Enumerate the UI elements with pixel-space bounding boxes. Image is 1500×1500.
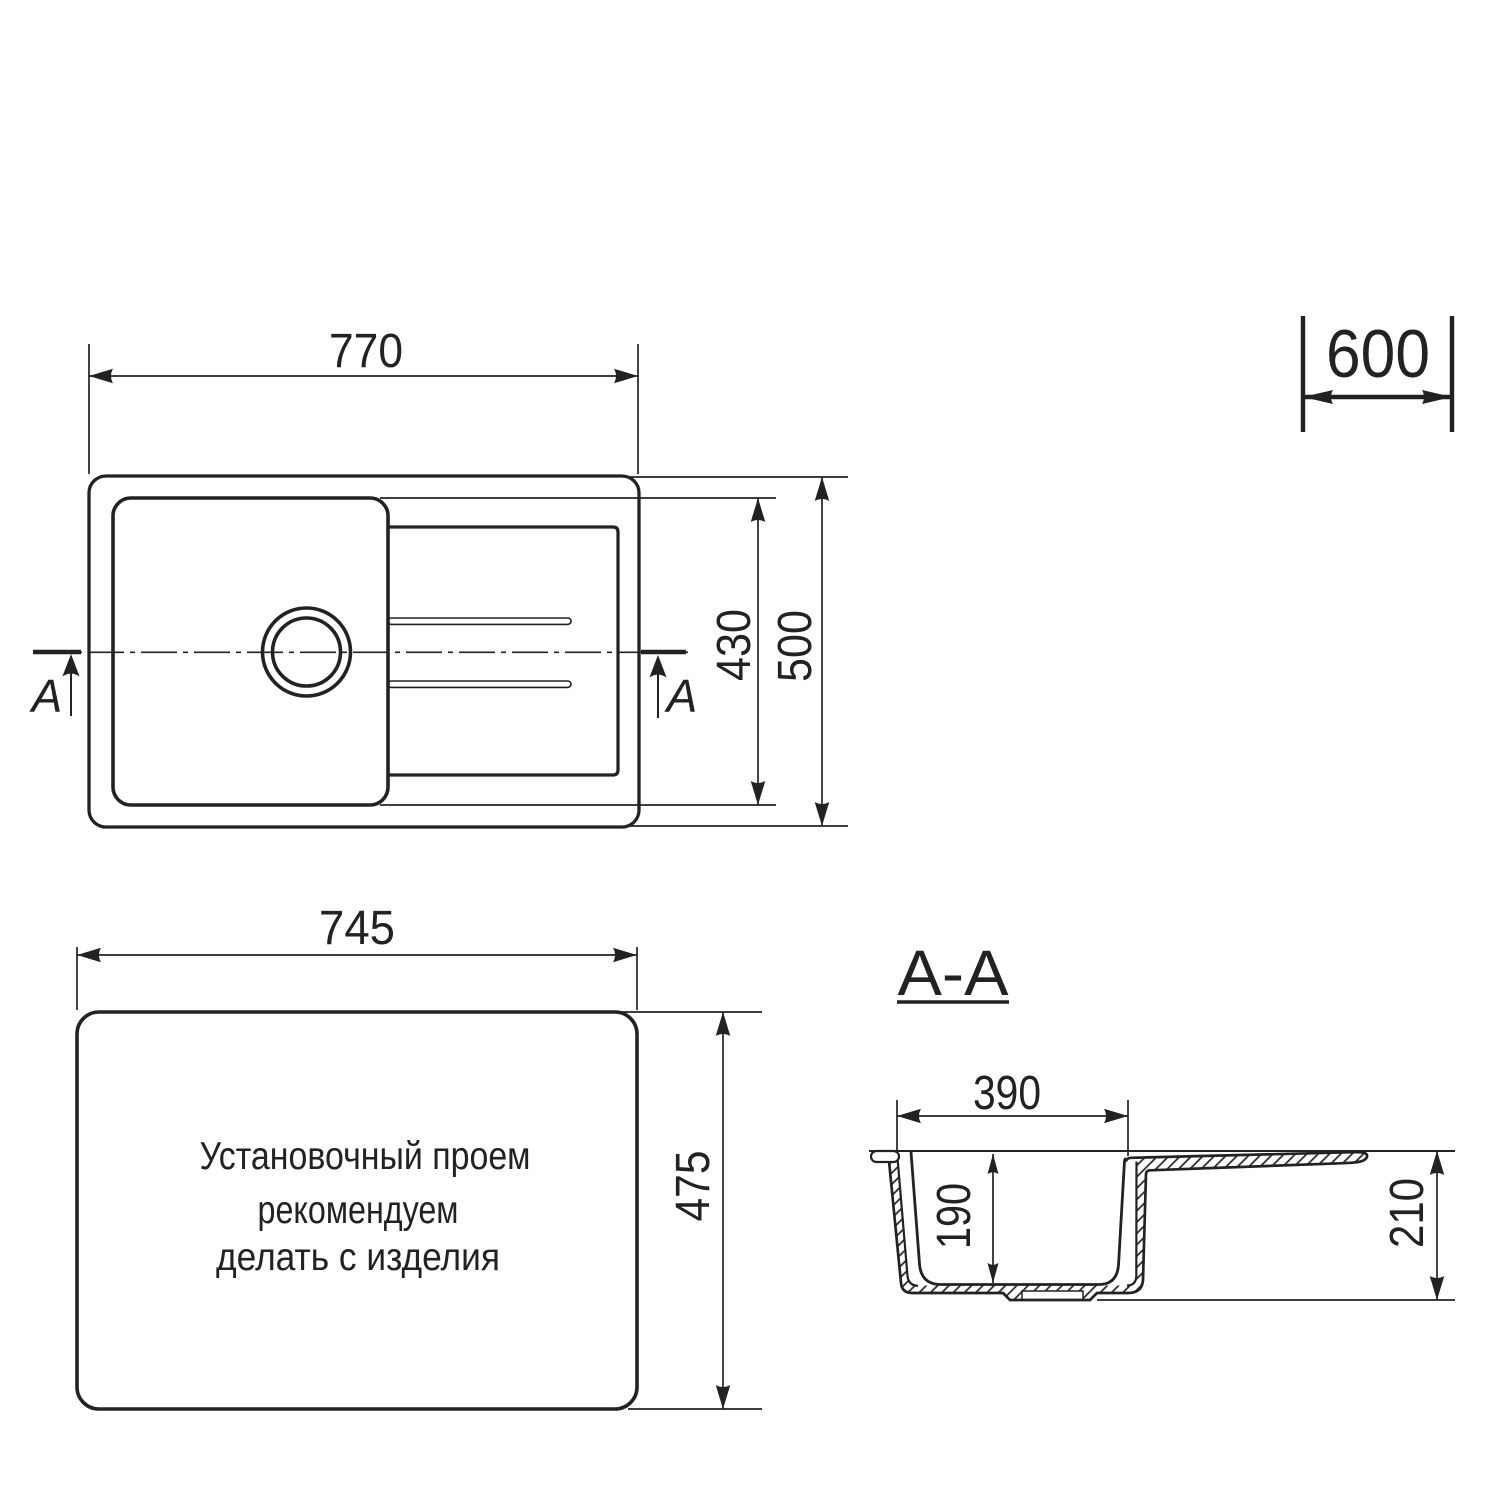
svg-text:A-A: A-A bbox=[898, 937, 1009, 1009]
svg-text:475: 475 bbox=[667, 1151, 720, 1222]
svg-text:500: 500 bbox=[769, 610, 822, 682]
svg-text:делать с изделия: делать с изделия bbox=[216, 1236, 500, 1279]
svg-text:A: A bbox=[664, 670, 698, 722]
svg-text:430: 430 bbox=[708, 609, 761, 681]
svg-text:рекомендуем: рекомендуем bbox=[258, 1189, 459, 1232]
svg-text:Установочный проем: Установочный проем bbox=[200, 1135, 531, 1178]
svg-text:A: A bbox=[29, 670, 63, 722]
svg-text:190: 190 bbox=[928, 1183, 981, 1249]
svg-text:745: 745 bbox=[319, 902, 395, 955]
svg-text:390: 390 bbox=[973, 1067, 1041, 1120]
svg-text:600: 600 bbox=[1326, 316, 1430, 392]
svg-text:770: 770 bbox=[329, 325, 403, 378]
svg-text:210: 210 bbox=[1381, 1178, 1434, 1248]
